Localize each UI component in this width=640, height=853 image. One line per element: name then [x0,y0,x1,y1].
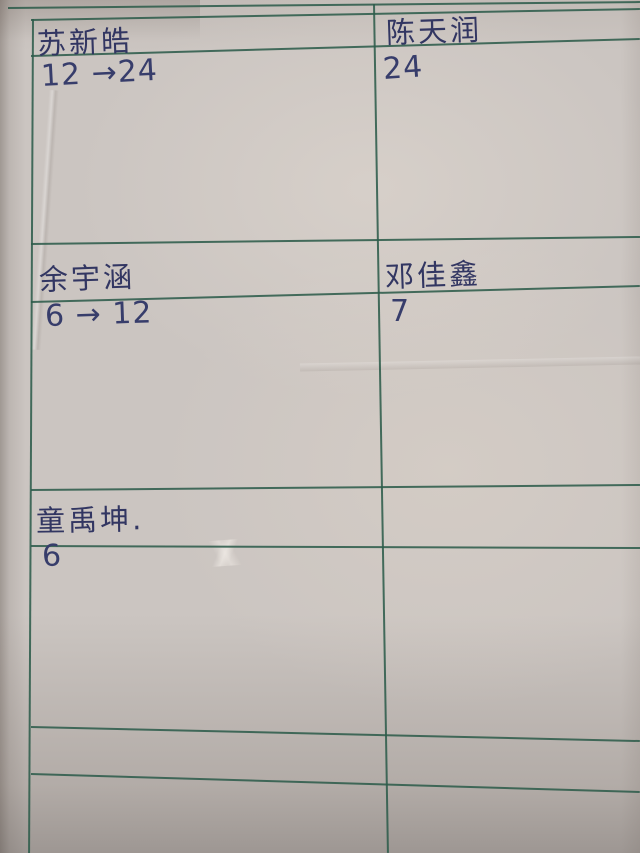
handwritten-name: 余宇涵 [38,254,135,299]
photo-of-handwritten-roster: 苏新皓 12 →24 陈天润 24 余宇涵 6 → 12 邓佳鑫 7 童禹坤. … [0,0,640,853]
handwritten-value: 24 [382,49,425,87]
handwritten-value: 6 [41,538,62,574]
table-cell-row1-col1: 苏新皓 12 →24 [31,19,373,243]
handwritten-name: 邓佳鑫 [384,251,481,296]
table-cell-row4-col2 [385,738,640,853]
handwritten-name: 陈天润 [385,7,482,52]
handwritten-value: 7 [390,294,410,329]
handwritten-value: 12 →24 [40,53,159,94]
table-cell-row3-col2 [383,485,640,728]
handwritten-name: 童禹坤. [36,496,145,540]
handwritten-value: 6 → 12 [44,295,153,334]
table-cell-row3-col1: 童禹坤. 6 [31,489,383,726]
table-cell-row4-col1 [31,726,385,853]
table-cell-row2-col1: 余宇涵 6 → 12 [31,243,381,489]
table-cell-row2-col2: 邓佳鑫 7 [381,237,640,484]
table-cell-row1-col2: 陈天润 24 [375,6,640,236]
